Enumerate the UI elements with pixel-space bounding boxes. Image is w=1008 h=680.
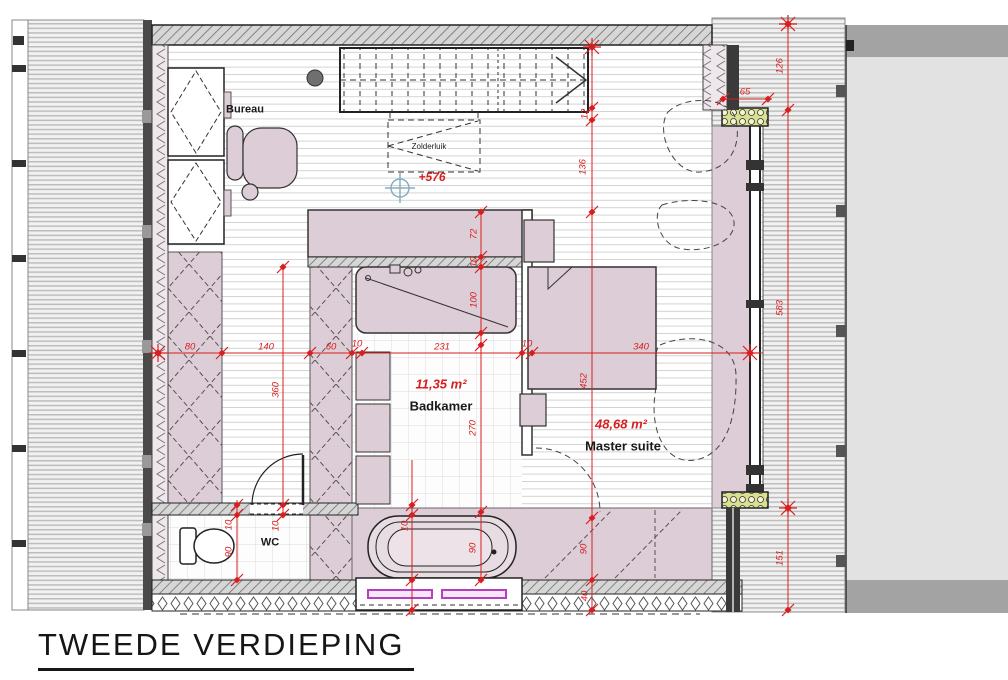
dim-label: 60 [326, 342, 337, 352]
dim-label: 340 [633, 342, 649, 352]
dim-label: 10 [400, 521, 410, 532]
dim-label: 100 [469, 292, 479, 308]
top-wall [152, 25, 712, 45]
dim-label: 40 [580, 591, 590, 602]
room-label-zolderluik: Zolderluik [411, 143, 448, 151]
adjacent-building-area [845, 25, 1008, 613]
bay-window [356, 578, 522, 610]
dim-label: 270 [468, 420, 478, 436]
dim-label: 126 [775, 58, 785, 74]
bureau-closets [168, 68, 231, 244]
floorplan-canvas: Bureau Zolderluik +576 11,35 m² Badkamer… [0, 0, 1008, 680]
dim-label: 90 [468, 543, 478, 554]
left-gutter [12, 20, 28, 610]
room-label-bureau: Bureau [226, 105, 264, 116]
left-roof [28, 20, 153, 610]
shower [356, 265, 516, 333]
left-wall [152, 45, 168, 580]
badkamer-area-label: 11,35 m² [415, 378, 466, 391]
staircase [307, 48, 588, 112]
dim-label: 231 [434, 342, 450, 352]
level-marker-label: +576 [418, 171, 445, 183]
dim-label: 12 [580, 109, 590, 120]
master-area-label: 48,68 m² [595, 418, 647, 431]
bathtub [368, 516, 516, 578]
mid-kneewall-upper [310, 267, 352, 503]
dim-label: 151 [775, 550, 785, 566]
dim-label: 10 [469, 257, 479, 268]
vanity-units [356, 352, 390, 504]
dim-label: 360 [271, 382, 281, 398]
floorplan-drawing [0, 0, 1008, 680]
radiator [442, 590, 506, 598]
radiator [368, 590, 432, 598]
dim-label: 72 [469, 229, 479, 240]
dim-label: 10 [522, 339, 533, 349]
column [307, 70, 323, 86]
dim-label: 452 [579, 373, 589, 389]
dim-label: 136 [578, 159, 588, 175]
room-label-wc: WC [261, 538, 279, 549]
wc-wall [152, 503, 358, 515]
dim-label: 10 [271, 521, 281, 532]
insulation-block-top [722, 108, 768, 126]
dim-label: 80 [185, 342, 196, 352]
room-label-master-suite: Master suite [585, 440, 661, 453]
dim-label: 583 [775, 300, 785, 316]
page-title: TWEEDE VERDIEPING [38, 627, 414, 671]
dim-label: 140 [258, 342, 274, 352]
dim-label: 10 [224, 520, 234, 531]
left-storage-kneewall [168, 252, 222, 503]
shower-wall [308, 210, 532, 267]
dim-label: 90 [224, 547, 234, 558]
mid-kneewall-lower [310, 515, 352, 580]
insulation-block-bottom [722, 492, 768, 508]
dim-label: 90 [579, 544, 589, 555]
room-label-badkamer: Badkamer [410, 400, 473, 413]
dim-label: 10 [352, 339, 363, 349]
dim-label: 65 [740, 87, 751, 97]
